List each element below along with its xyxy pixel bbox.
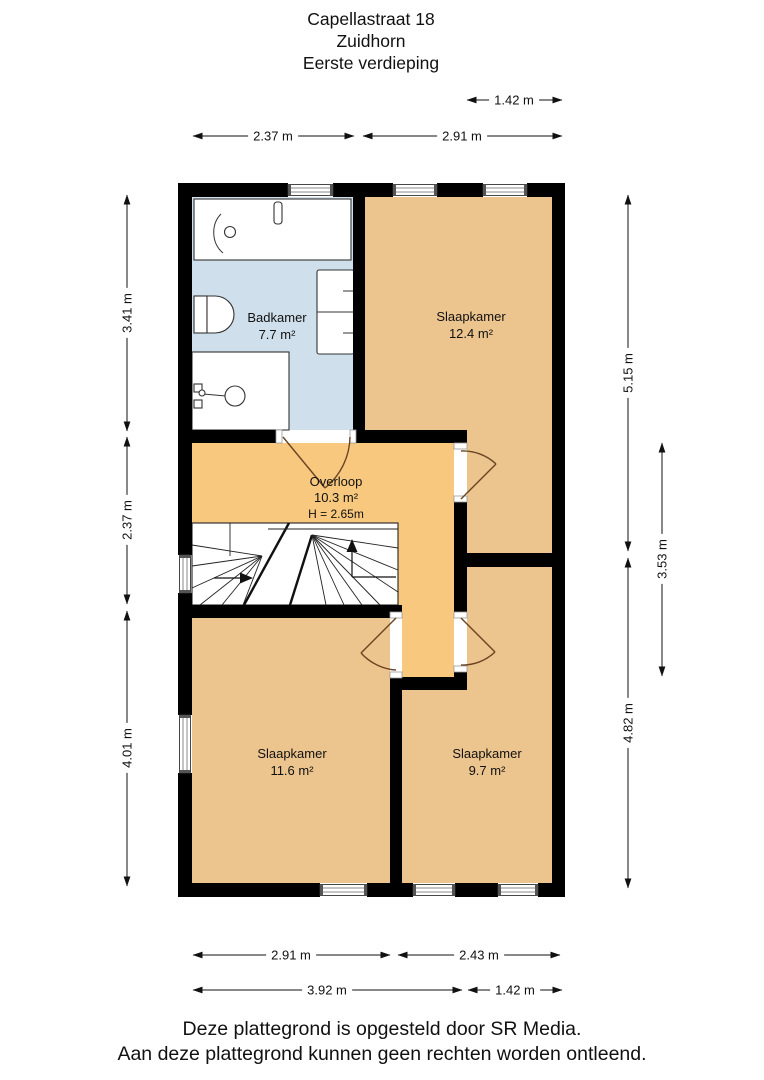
room-label-slaapkamer-rechts: Slaapkamer 9.7 m² (452, 746, 521, 779)
dim-top-left: 2.37 m (248, 129, 298, 144)
shower-knob (199, 390, 205, 396)
window (413, 885, 455, 896)
room-area: 7.7 m² (247, 327, 306, 344)
dim-top-offset: 1.42 m (489, 93, 539, 108)
window (393, 185, 437, 196)
dim-bottom-offset: 1.42 m (490, 983, 540, 998)
room-name: Overloop (308, 474, 364, 490)
room-ceiling-height: H = 2.65m (308, 506, 364, 522)
dim-bottom-left: 2.91 m (266, 948, 316, 963)
dim-left-upper: 3.41 m (120, 288, 135, 338)
bathtub-drain (225, 227, 236, 238)
room-label-badkamer: Badkamer 7.7 m² (247, 310, 306, 343)
window (180, 555, 191, 593)
floorplan-page: Capellastraat 18 Zuidhorn Eerste verdiep… (0, 0, 764, 1080)
room-name: Badkamer (247, 310, 306, 327)
shower-head (225, 386, 245, 406)
window (288, 185, 333, 196)
dim-right-lower: 4.82 m (621, 698, 636, 748)
room-label-slaapkamer-groot: Slaapkamer 12.4 m² (436, 309, 505, 342)
staircase (192, 523, 398, 605)
room-name: Slaapkamer (452, 746, 521, 763)
room-name: Slaapkamer (436, 309, 505, 326)
dim-bottom-total-left: 3.92 m (302, 983, 352, 998)
dim-top-right: 2.91 m (437, 129, 487, 144)
footer-line-1: Deze plattegrond is opgesteld door SR Me… (183, 1018, 582, 1041)
bathtub (194, 199, 351, 260)
room-area: 9.7 m² (452, 763, 521, 780)
dim-right-inner: 3.53 m (655, 534, 670, 584)
dim-bottom-right: 2.43 m (454, 948, 504, 963)
room-name: Slaapkamer (257, 746, 326, 763)
bathtub-faucet (274, 202, 282, 224)
window (320, 885, 367, 896)
window (180, 715, 191, 773)
dim-left-lower: 4.01 m (120, 723, 135, 773)
room-area: 12.4 m² (436, 326, 505, 343)
shower-valve-bottom (194, 400, 202, 408)
window (483, 185, 527, 196)
room-area: 11.6 m² (257, 763, 326, 780)
toilet-cistern (194, 296, 207, 333)
floor-plan-svg (0, 0, 764, 1080)
room-label-overloop: Overloop 10.3 m² H = 2.65m (308, 474, 364, 522)
window (498, 885, 538, 896)
footer-line-2: Aan deze plattegrond kunnen geen rechten… (117, 1043, 646, 1066)
dim-left-middle: 2.37 m (120, 495, 135, 545)
room-area: 10.3 m² (308, 490, 364, 506)
dim-right-upper: 5.15 m (621, 348, 636, 398)
room-label-slaapkamer-links: Slaapkamer 11.6 m² (257, 746, 326, 779)
